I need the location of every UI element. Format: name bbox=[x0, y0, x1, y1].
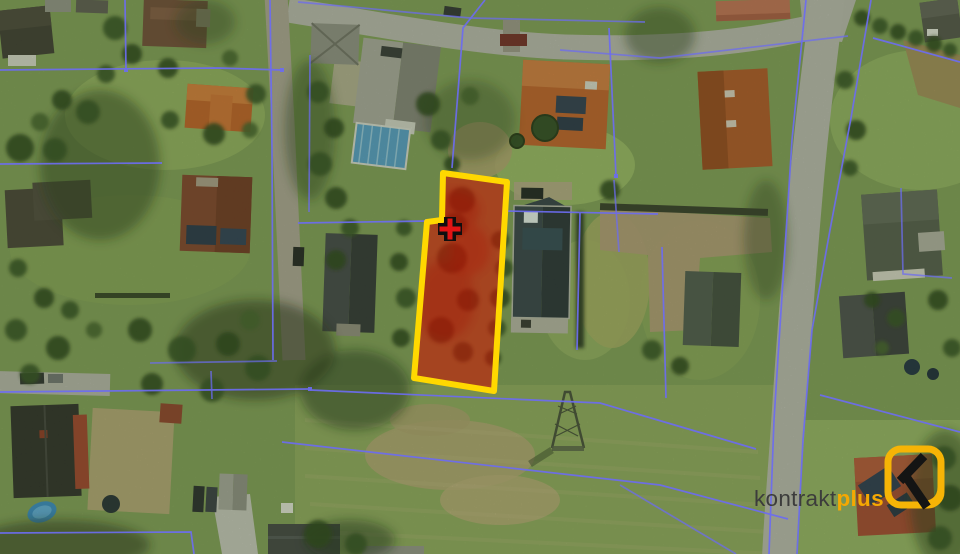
parcel-line bbox=[309, 55, 310, 212]
watermark-icon bbox=[883, 443, 947, 515]
watermark-logo: kontraktplus bbox=[754, 488, 884, 510]
watermark-text-kontrakt: kontrakt bbox=[754, 486, 836, 511]
aerial-map: kontraktplus bbox=[0, 0, 960, 554]
aerial-photo-canvas bbox=[0, 0, 960, 554]
logo-roof-glyph bbox=[900, 456, 927, 507]
watermark-text-plus: plus bbox=[836, 486, 883, 511]
parcel-line bbox=[211, 371, 212, 399]
parcel-line bbox=[0, 163, 162, 164]
parcel-line bbox=[125, 0, 126, 70]
